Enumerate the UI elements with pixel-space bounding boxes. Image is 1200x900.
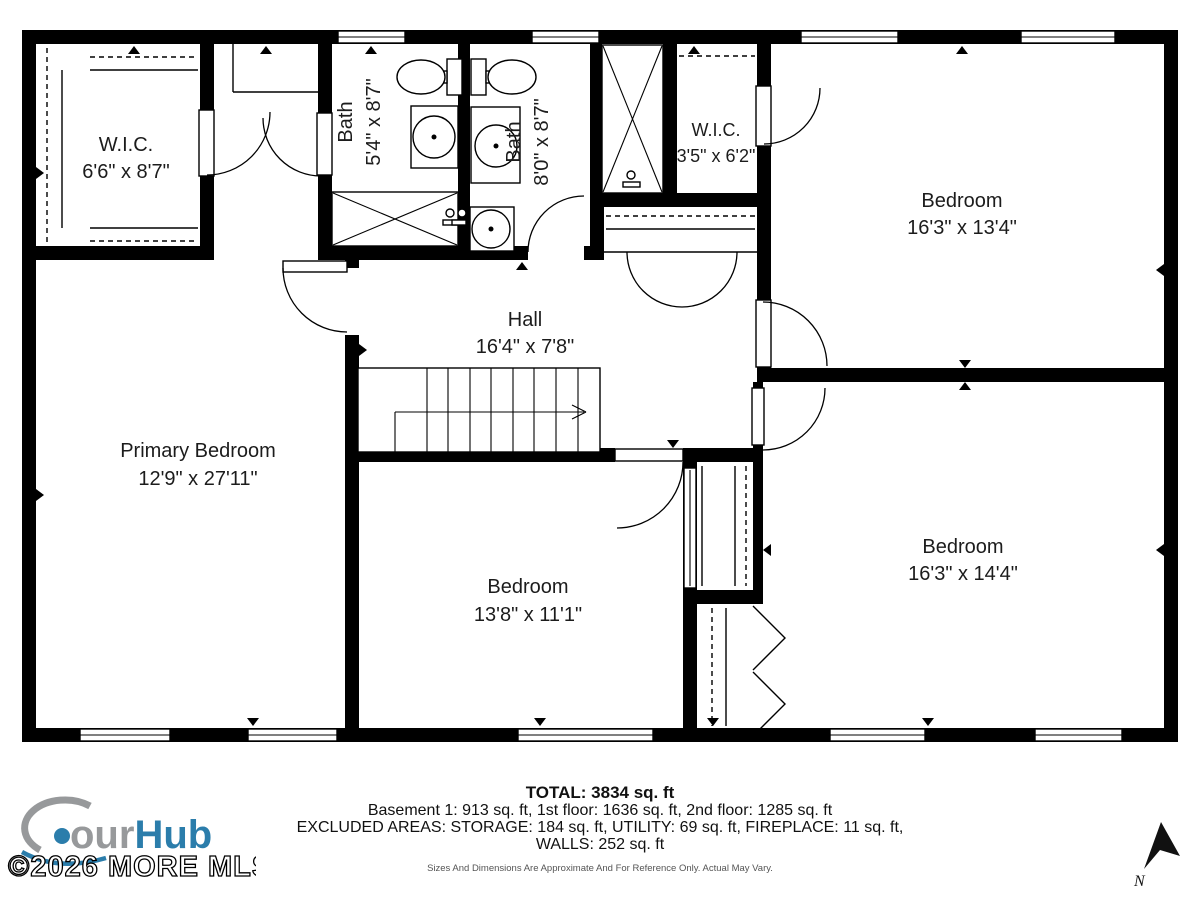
room-label-bath-primary: Bath — [335, 101, 357, 142]
north-arrow: N — [1128, 810, 1192, 894]
north-label: N — [1133, 873, 1146, 890]
room-dims-wic-small: 3'5" x 6'2" — [677, 146, 756, 166]
room-dims-bath-primary: 5'4" x 8'7" — [363, 78, 385, 165]
room-label-primary-bedroom: Primary Bedroom — [120, 440, 276, 462]
floor-plan: W.I.C. 6'6" x 8'7" Bath 5'4" x 8'7" Bath… — [0, 0, 1200, 900]
room-label-bedroom-bottom-mid: Bedroom — [487, 576, 568, 598]
door-leaf — [756, 86, 771, 146]
staircase — [358, 368, 600, 452]
room-label-wic-primary: W.I.C. — [99, 134, 153, 156]
shower — [602, 45, 663, 193]
room-dims-bedroom-top-right: 16'3" x 13'4" — [907, 217, 1017, 239]
toilet — [471, 59, 536, 95]
sink-vanity — [411, 106, 458, 168]
room-dims-hall: 16'4" x 7'8" — [476, 336, 575, 358]
room-dims-bath-hall: 8'0" x 8'7" — [531, 98, 553, 185]
tourhub-logo: ourHub ©2026 MORE MLS — [6, 792, 256, 892]
room-dims-wic-primary: 6'6" x 8'7" — [82, 161, 169, 183]
room-label-bedroom-bottom-right: Bedroom — [922, 536, 1003, 558]
room-label-bedroom-top-right: Bedroom — [921, 190, 1002, 212]
door-leaf — [615, 449, 683, 461]
door-leaf — [199, 110, 214, 176]
room-label-bath-primary-group: Bath 5'4" x 8'7" — [335, 78, 385, 165]
room-dims-bedroom-bottom-mid: 13'8" x 11'1" — [474, 604, 582, 626]
door-leaf — [283, 261, 347, 272]
door-leaf — [317, 113, 332, 175]
shower — [332, 192, 458, 246]
door-leaf — [752, 388, 764, 445]
room-label-wic-small: W.I.C. — [692, 120, 741, 140]
toilet — [397, 59, 462, 95]
room-dims-bedroom-bottom-right: 16'3" x 14'4" — [908, 563, 1018, 585]
room-label-hall: Hall — [508, 309, 542, 331]
room-label-bath-hall: Bath — [503, 121, 525, 162]
door-leaf — [756, 300, 771, 367]
mls-watermark: ©2026 MORE MLS — [8, 851, 256, 883]
floor-plan-page: W.I.C. 6'6" x 8'7" Bath 5'4" x 8'7" Bath… — [0, 0, 1200, 900]
room-dims-primary-bedroom: 12'9" x 27'11" — [138, 468, 257, 490]
room-labels: W.I.C. 6'6" x 8'7" Bath 5'4" x 8'7" Bath… — [82, 78, 1018, 626]
north-arrow-icon — [1144, 822, 1180, 869]
